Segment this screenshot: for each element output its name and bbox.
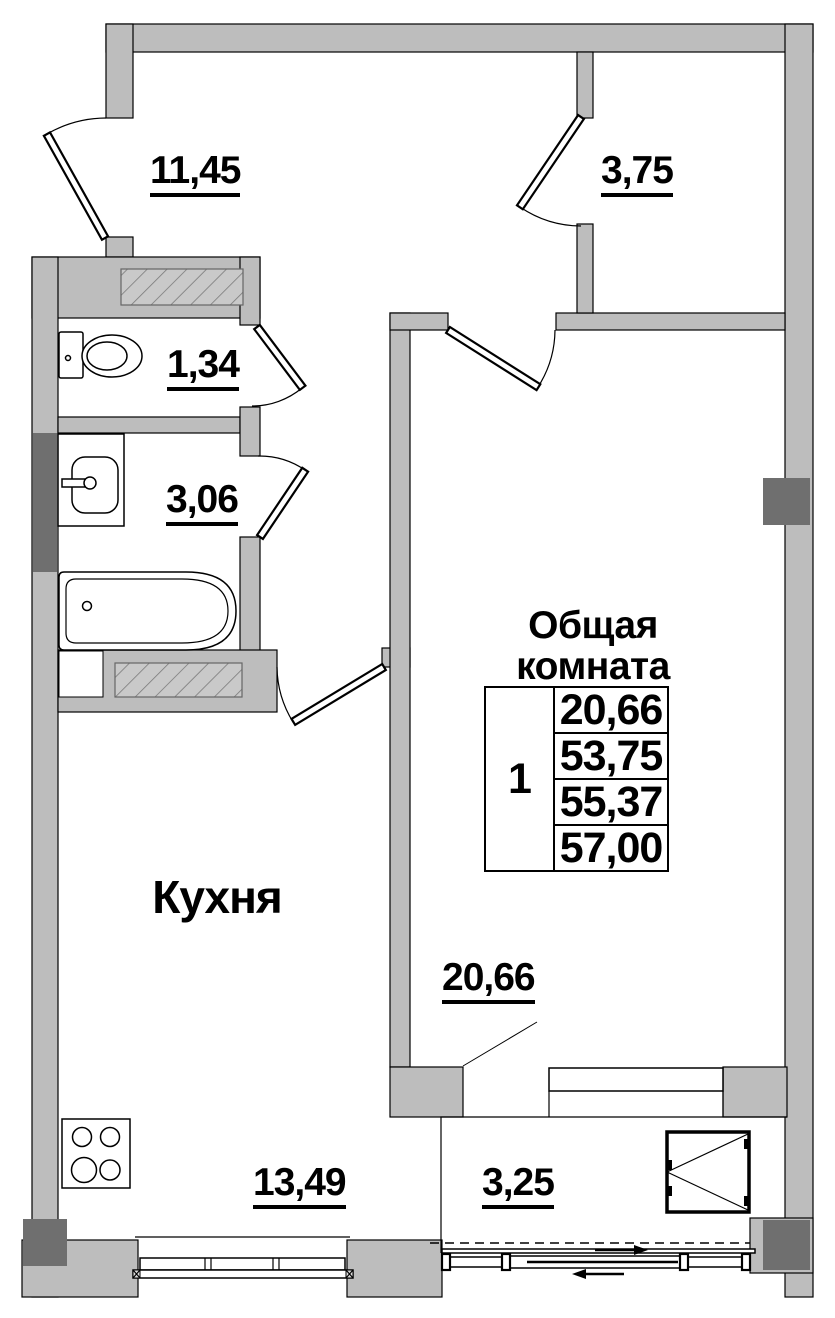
storage-area-label: 3,75 (601, 151, 673, 197)
living-area-cell: 20,66 (554, 687, 668, 733)
wc-area-label: 1,34 (167, 345, 239, 391)
kitchen-area-label: 13,49 (253, 1163, 346, 1209)
leader-line (463, 1022, 537, 1066)
wc-door (252, 325, 305, 406)
casement-window-icon (667, 1132, 749, 1212)
apartment-summary-table: 1 20,66 53,75 55,37 57,00 (484, 686, 669, 872)
toilet-icon (59, 332, 142, 378)
kitchen-name-label: Кухня (137, 874, 297, 920)
bathroom-area-label: 3,06 (166, 480, 238, 526)
plumbing-niche (59, 651, 103, 697)
balcony-area-label: 3,25 (482, 1163, 554, 1209)
stove-icon (62, 1119, 130, 1188)
balcony-glazing (430, 1243, 755, 1270)
floor-plan: 11,45 3,75 1,34 3,06 Общая комната 20,66… (0, 0, 835, 1318)
bathtub-icon (59, 572, 236, 650)
area-cell-2: 53,75 (554, 733, 668, 779)
living-room-name-label: Общая комната (463, 605, 723, 687)
entrance-door (44, 118, 108, 240)
bathroom-door (257, 456, 308, 539)
area-cell-3: 55,37 (554, 779, 668, 825)
living-room-area-label: 20,66 (442, 958, 535, 1004)
rooms-count-cell: 1 (485, 687, 554, 871)
living-room-window (549, 1068, 723, 1117)
living-room-door (446, 327, 555, 390)
kitchen-door (277, 664, 386, 725)
storage-door (517, 115, 584, 226)
sink-icon (58, 434, 124, 526)
kitchen-window (133, 1237, 353, 1278)
total-area-cell: 57,00 (554, 825, 668, 871)
hallway-area-label: 11,45 (150, 151, 240, 197)
